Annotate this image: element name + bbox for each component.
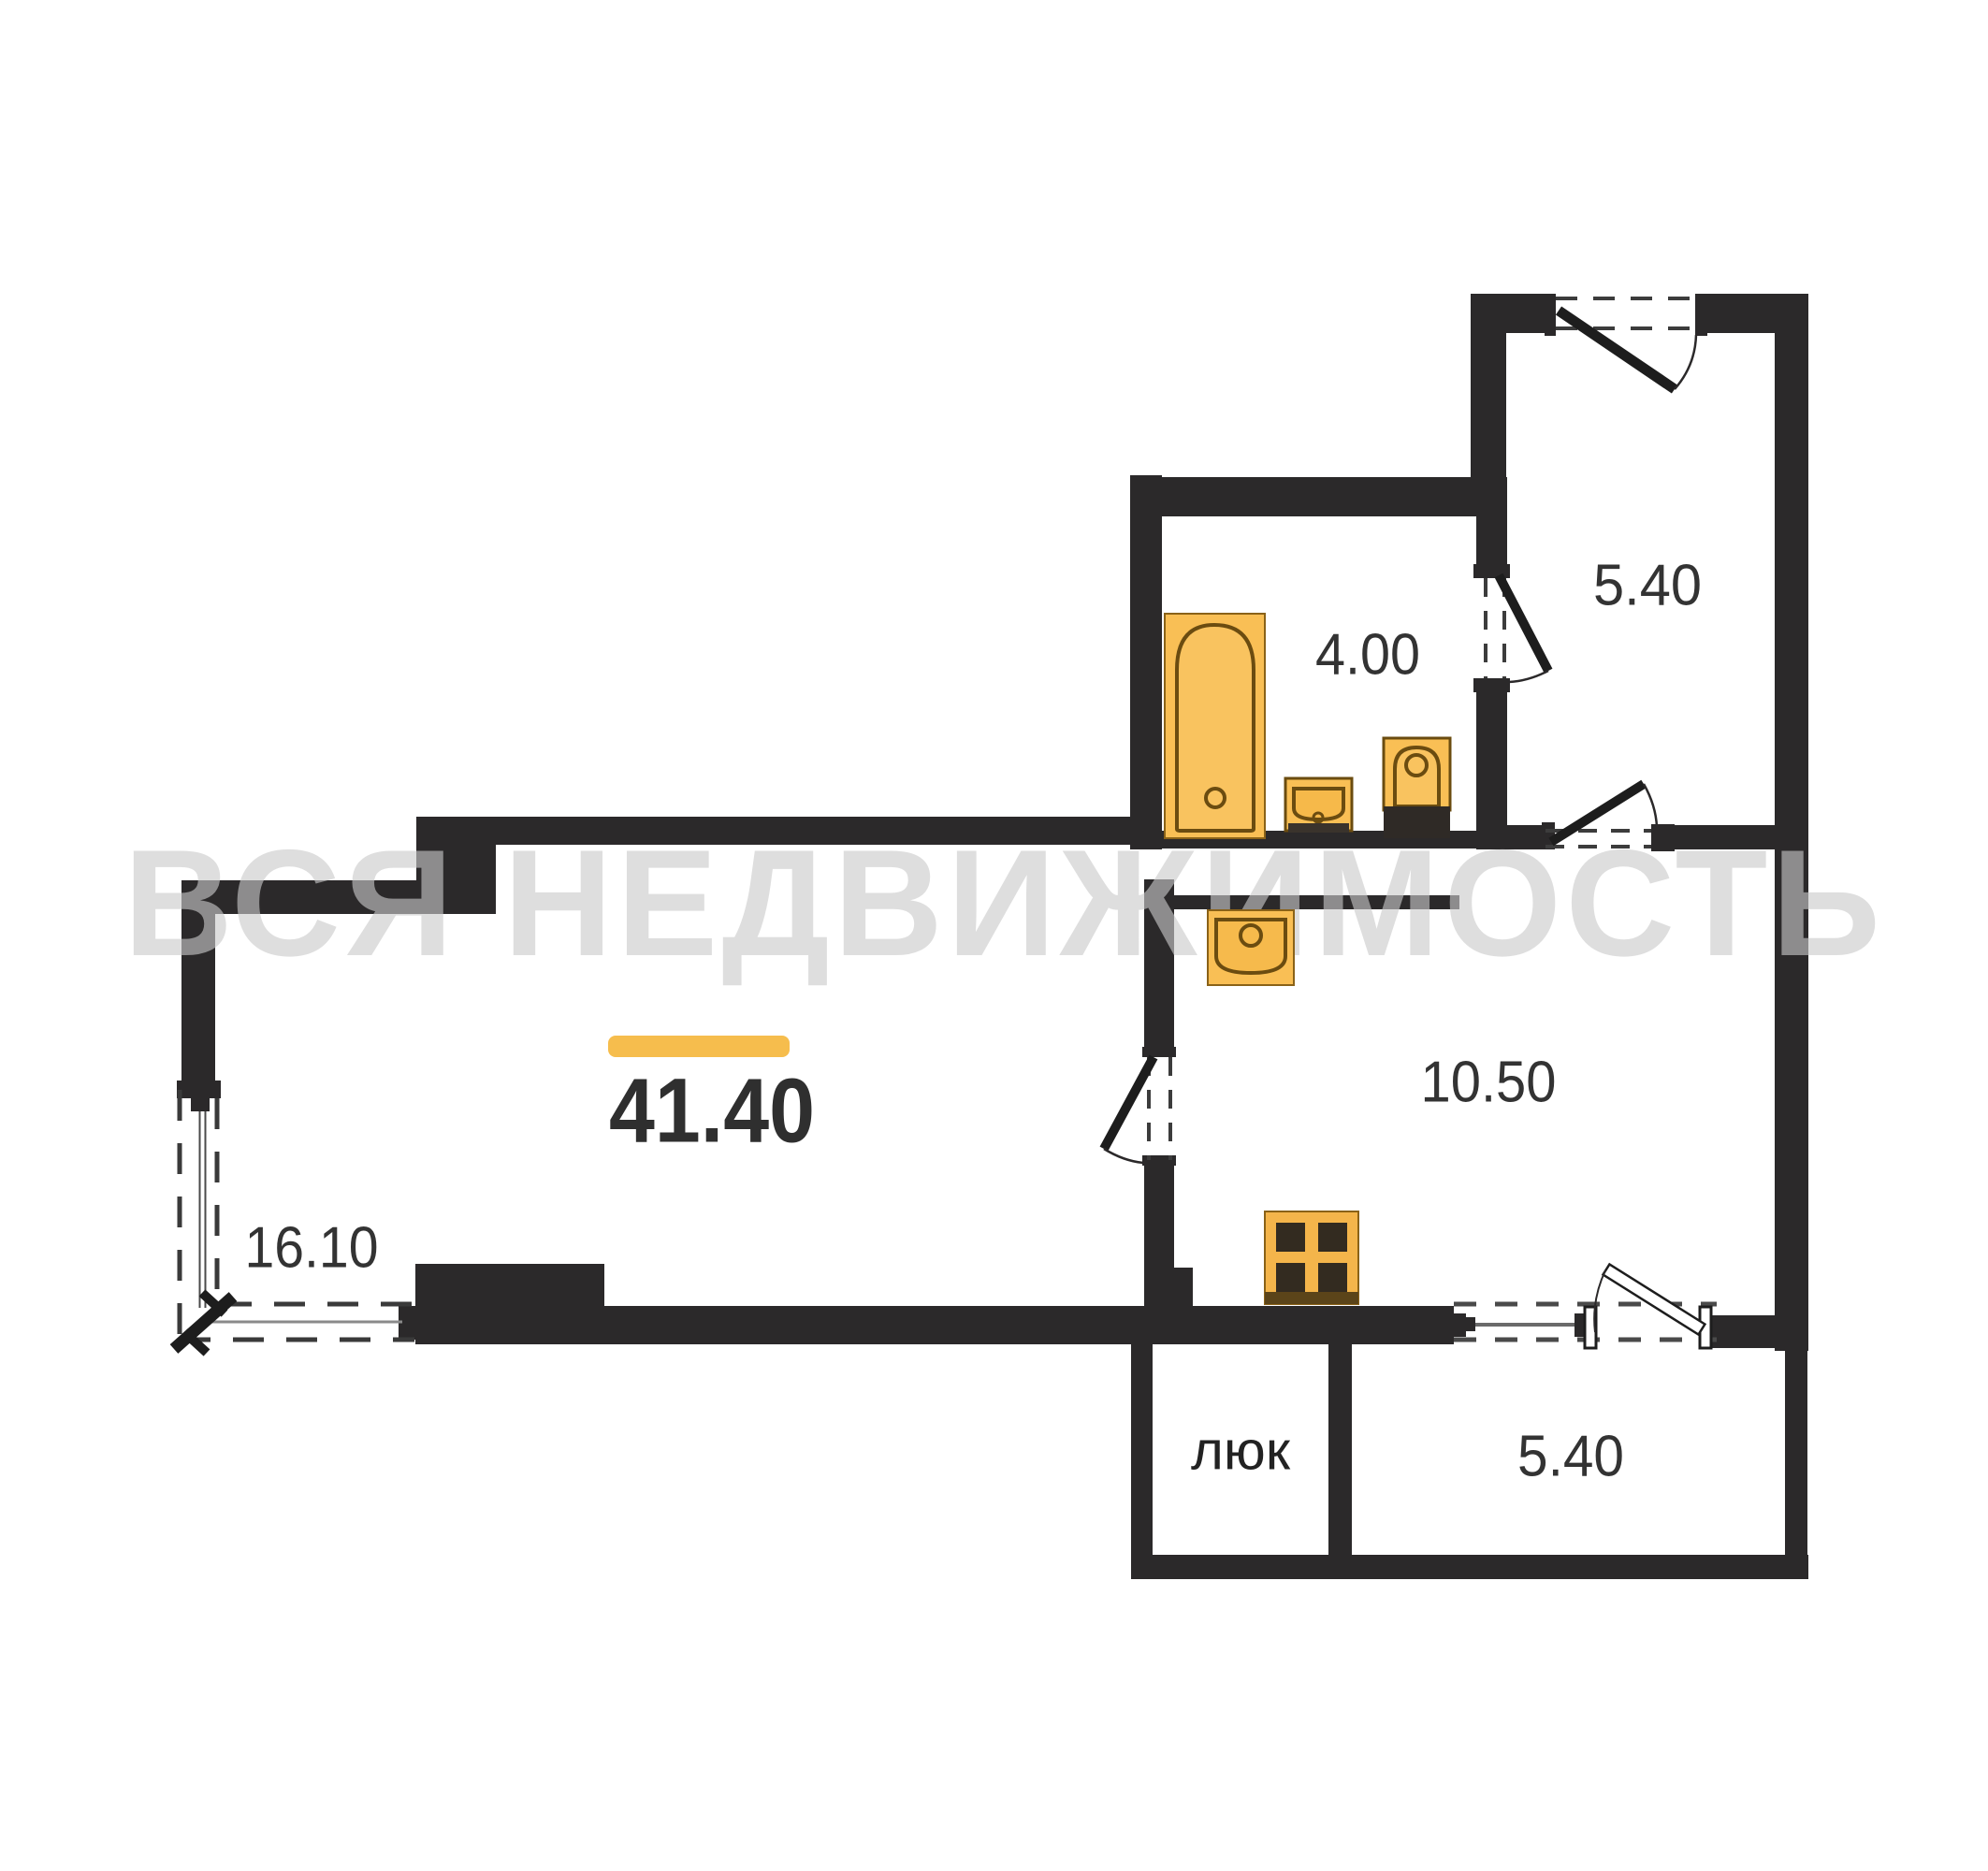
svg-text:16.10: 16.10 xyxy=(245,1216,379,1281)
svg-text:ВСЯ НЕДВИЖИМОСТЬ: ВСЯ НЕДВИЖИМОСТЬ xyxy=(123,819,1880,988)
svg-text:5.40: 5.40 xyxy=(1593,554,1702,618)
svg-text:5.40: 5.40 xyxy=(1517,1425,1624,1489)
svg-text:4.00: 4.00 xyxy=(1315,623,1420,688)
svg-text:41.40: 41.40 xyxy=(609,1060,815,1162)
svg-text:люк: люк xyxy=(1191,1421,1291,1482)
svg-text:10.50: 10.50 xyxy=(1421,1051,1557,1115)
